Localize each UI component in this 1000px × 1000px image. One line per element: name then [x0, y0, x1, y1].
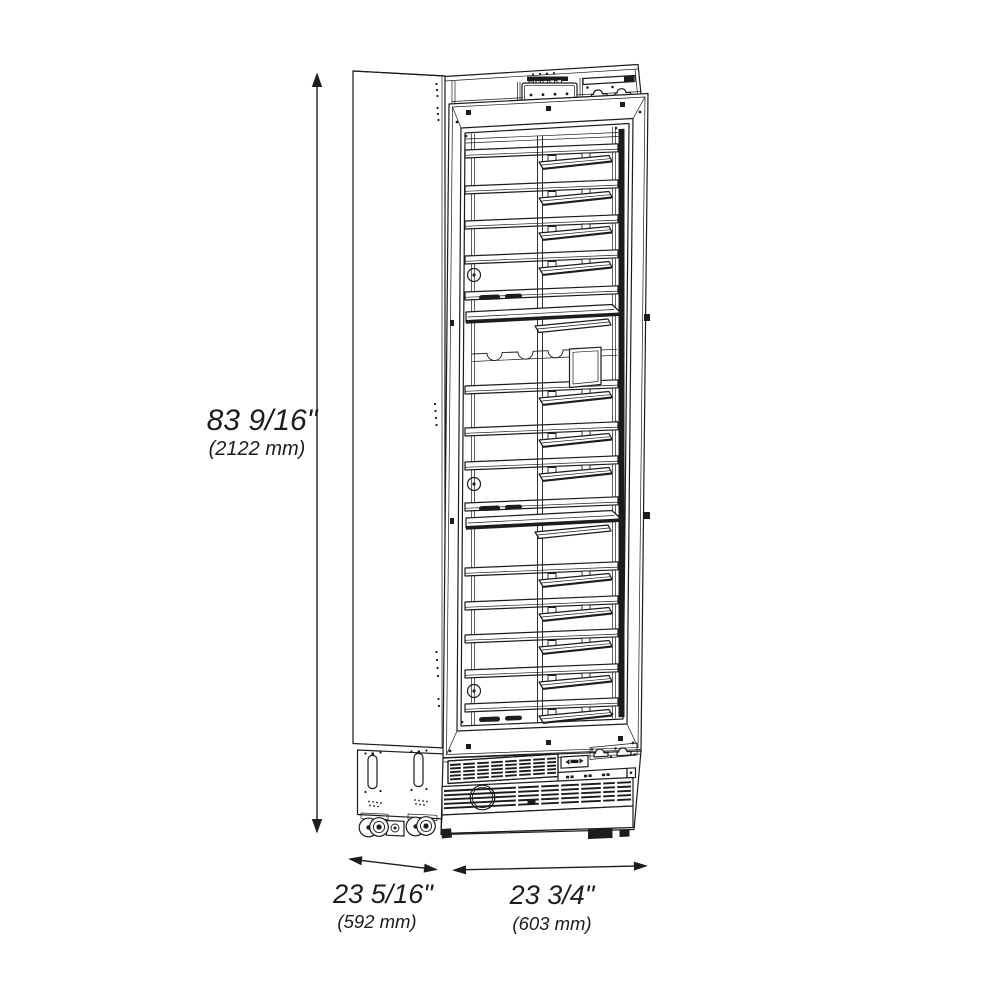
- caster-wheel-rear: [359, 818, 388, 837]
- slide-adjuster-box: [561, 755, 588, 768]
- side-base-compartment: [358, 749, 446, 836]
- caster-wheel-front: [406, 817, 435, 836]
- width-inches-label: 23 3/4": [509, 880, 596, 910]
- leveling-foot: [620, 830, 630, 838]
- width-dimension-line: [465, 866, 635, 870]
- arrow-down-icon: [312, 819, 322, 834]
- arrow-left-icon: [452, 865, 466, 874]
- leveling-foot: [588, 828, 613, 839]
- arrow-left-icon: [348, 856, 362, 865]
- depth-dimension: 23 5/16" (592 mm): [332, 856, 438, 932]
- arrow-up-icon: [312, 73, 322, 88]
- wine-cooler-dimension-diagram: 83 9/16" (2122 mm) 23 5/16" (592 mm) 23 …: [0, 0, 1000, 1000]
- caster-gearbox: [387, 821, 405, 837]
- depth-mm-label: (592 mm): [337, 911, 416, 932]
- depth-dimension-line: [360, 860, 426, 868]
- dimension-diagram-canvas: 83 9/16" (2122 mm) 23 5/16" (592 mm) 23 …: [0, 0, 1000, 1000]
- height-dimension: 83 9/16" (2122 mm): [207, 73, 323, 834]
- arrow-right-icon: [634, 862, 648, 871]
- height-inches-label: 83 9/16": [207, 404, 319, 437]
- arrow-right-icon: [424, 864, 438, 873]
- base-grille-section: [441, 743, 641, 839]
- door-gasket-strip: [619, 129, 625, 718]
- width-mm-label: (603 mm): [512, 913, 591, 934]
- width-dimension: 23 3/4" (603 mm): [452, 862, 648, 934]
- depth-inches-label: 23 5/16": [332, 879, 434, 909]
- cabinet-side-panel: [353, 71, 445, 748]
- height-mm-label: (2122 mm): [209, 438, 306, 460]
- front-caster-peek: [441, 828, 452, 838]
